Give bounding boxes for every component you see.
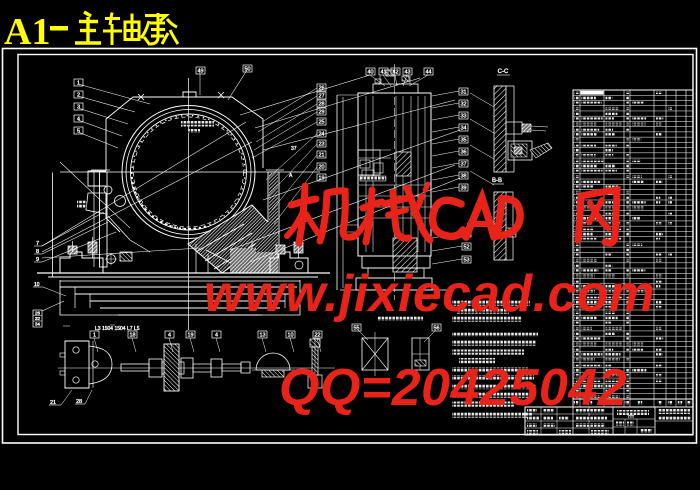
svg-text:34: 34 [35,322,41,327]
svg-text:34: 34 [460,126,466,132]
svg-text:B-B: B-B [492,178,502,184]
svg-text:35: 35 [460,138,466,144]
svg-text:44: 44 [425,70,431,76]
svg-text:21: 21 [318,153,324,159]
svg-text:1: 1 [93,333,96,339]
svg-text:4: 4 [168,333,171,339]
svg-text:1: 1 [77,81,80,87]
svg-text:26: 26 [35,311,41,316]
svg-text:28: 28 [318,102,324,108]
svg-text:TTT: TTT [628,415,635,419]
svg-text:38: 38 [460,174,466,180]
svg-text:23: 23 [318,142,324,148]
svg-text:3: 3 [77,105,80,111]
svg-text:53: 53 [463,258,469,264]
svg-text:www.jixiecad.com: www.jixiecad.com [204,264,655,322]
svg-text:13: 13 [259,333,265,339]
svg-text:41: 41 [380,70,386,76]
svg-text:27: 27 [318,94,324,100]
svg-text:10: 10 [287,333,293,339]
svg-text:4: 4 [77,117,80,123]
svg-text:56: 56 [433,326,439,332]
svg-text:29: 29 [318,110,324,116]
svg-text:37: 37 [291,146,297,152]
svg-text:49: 49 [197,69,203,75]
svg-text:52: 52 [463,245,469,251]
svg-text:19: 19 [187,333,193,339]
svg-text:4: 4 [215,333,218,339]
svg-text:QQ=20425042: QQ=20425042 [279,359,627,417]
svg-text:C-C: C-C [498,69,509,75]
svg-text:A1: A1 [4,11,50,53]
svg-text:5: 5 [77,129,80,135]
svg-text:43: 43 [404,70,410,76]
svg-text:32: 32 [35,316,41,321]
svg-text:37: 37 [460,162,466,168]
svg-text:33: 33 [460,114,466,120]
svg-text:39: 39 [460,186,466,192]
svg-text:50: 50 [244,67,250,73]
svg-text:20: 20 [318,165,324,171]
svg-text:25: 25 [318,120,324,126]
svg-text:32: 32 [460,102,466,108]
svg-text:31: 31 [460,90,466,96]
svg-text:40: 40 [367,70,373,76]
svg-text:42: 42 [392,70,398,76]
svg-text:2: 2 [77,93,80,99]
svg-text:36: 36 [460,150,466,156]
svg-text:18: 18 [129,333,135,339]
svg-text:22: 22 [314,333,320,339]
